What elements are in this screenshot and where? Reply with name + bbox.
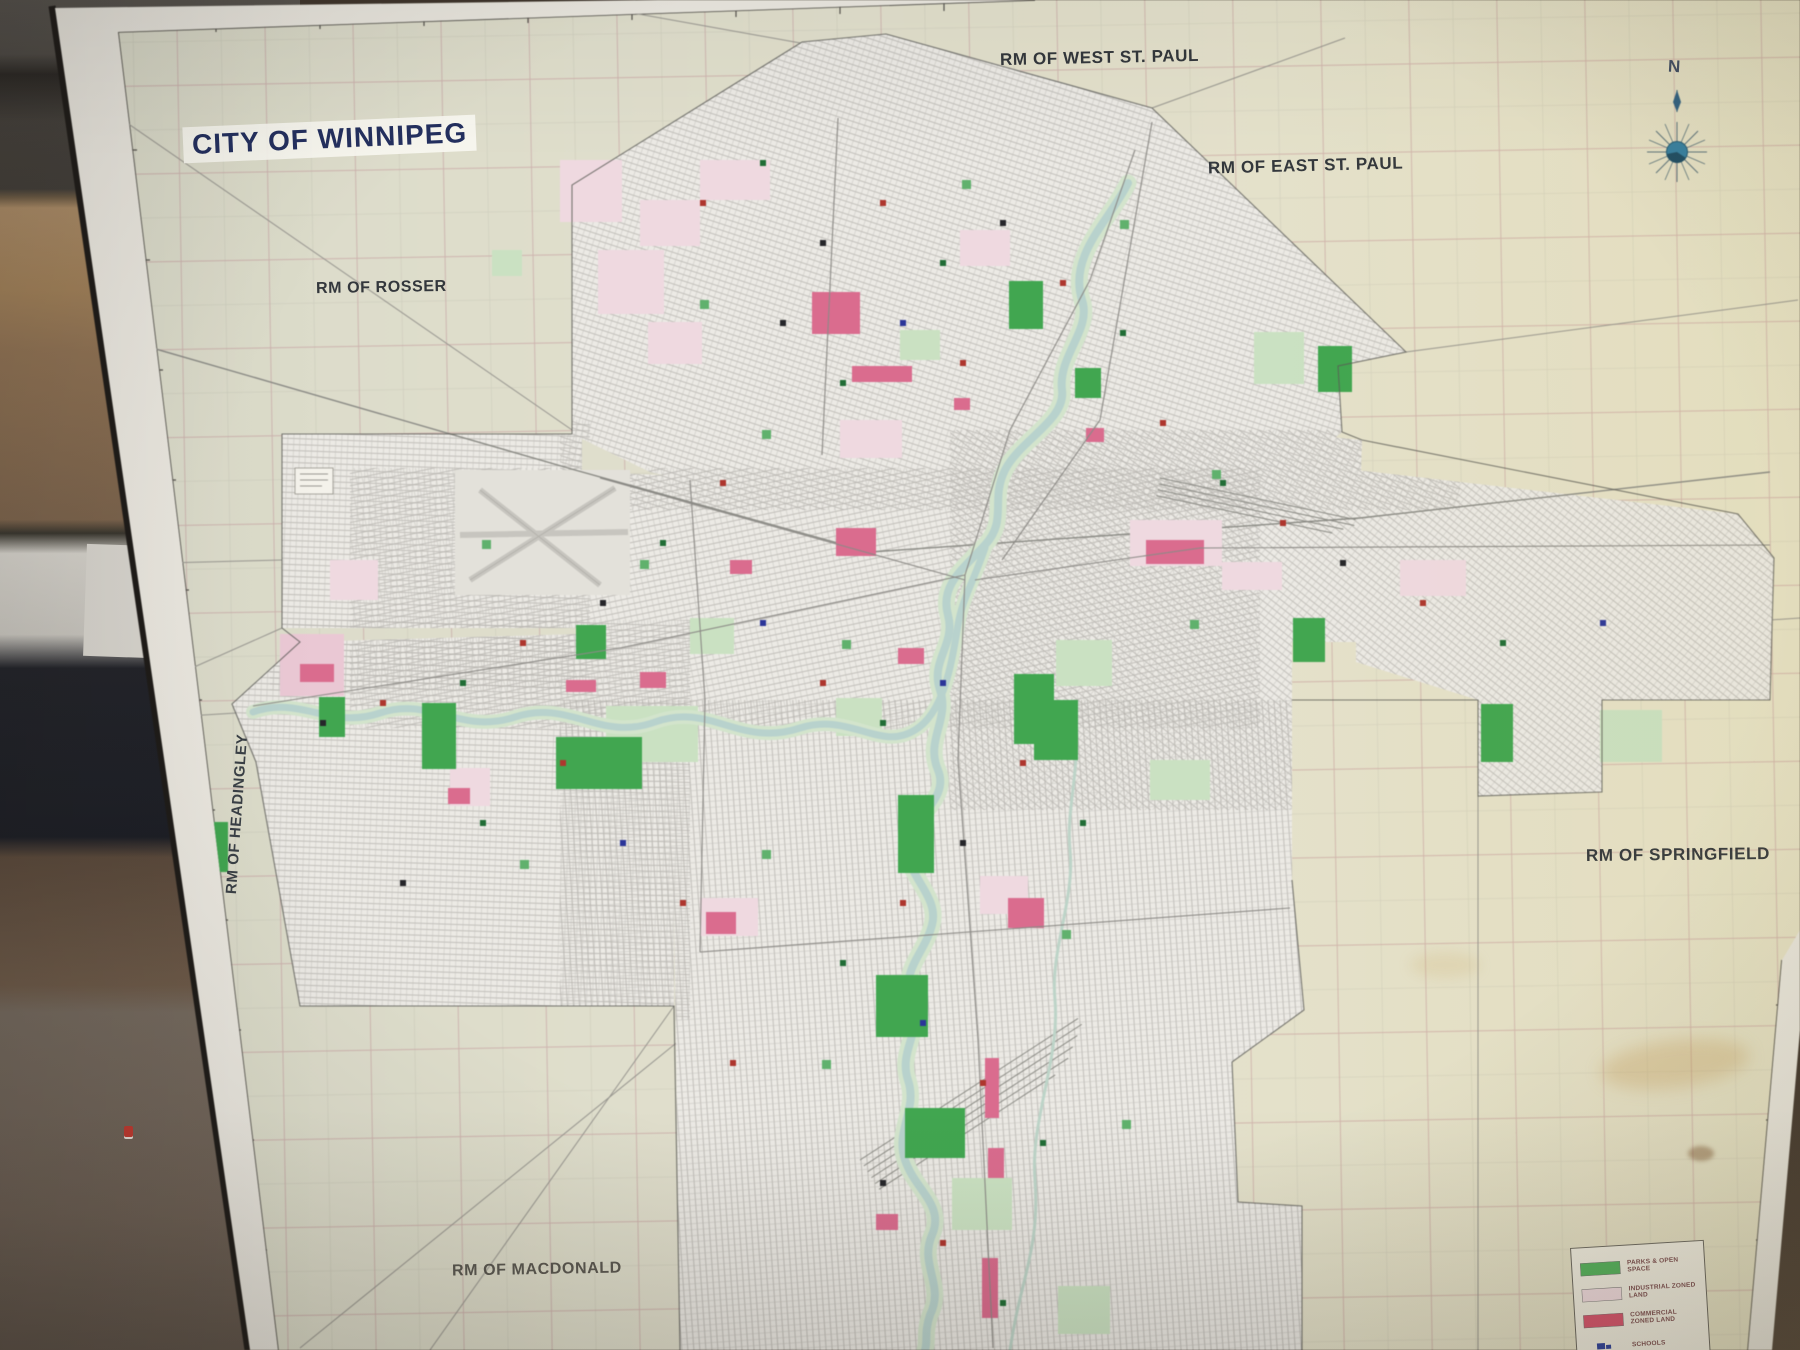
- map-photo: CITY OF WINNIPEG RM OF WEST ST. PAUL RM …: [0, 0, 1800, 1350]
- parks-swatch: [1580, 1260, 1621, 1275]
- legend-label: SCHOOLS: [1632, 1339, 1666, 1348]
- commercial-swatch: [1583, 1312, 1624, 1327]
- photo-stain: [1688, 1146, 1714, 1161]
- map-board: [0, 0, 1800, 1350]
- region-label-macdonald: RM OF MACDONALD: [452, 1260, 622, 1281]
- schools-symbol-icon: [1585, 1338, 1626, 1350]
- region-label-springfield: RM OF SPRINGFIELD: [1586, 844, 1770, 866]
- industrial-swatch: [1582, 1286, 1623, 1301]
- map-artwork: [0, 0, 1800, 1350]
- legend-label: COMMERCIAL ZONED LAND: [1630, 1307, 1702, 1325]
- region-label-rosser: RM OF ROSSER: [316, 278, 447, 298]
- compass-north-label: N: [1667, 57, 1681, 78]
- region-label-west-st-paul: RM OF WEST ST. PAUL: [1000, 46, 1199, 70]
- photo-stain: [1410, 952, 1480, 978]
- legend-label: INDUSTRIAL ZONED LAND: [1628, 1281, 1700, 1299]
- legend-label: PARKS & OPEN SPACE: [1627, 1255, 1699, 1273]
- legend-box: PARKS & OPEN SPACE INDUSTRIAL ZONED LAND…: [1570, 1240, 1712, 1350]
